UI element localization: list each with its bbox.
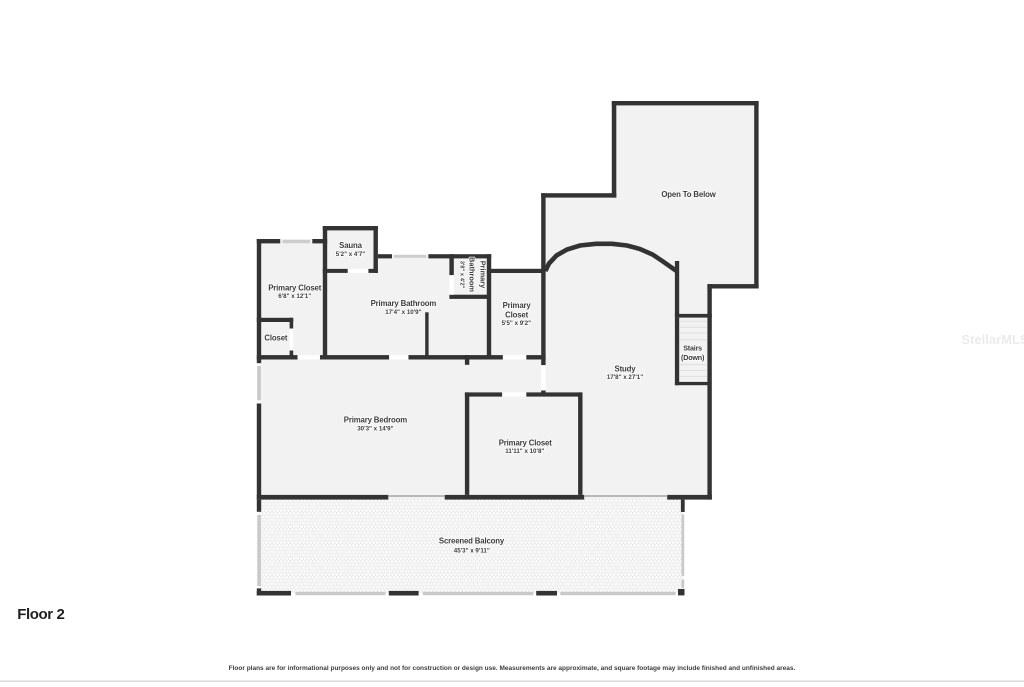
svg-text:Primary Bedroom: Primary Bedroom — [344, 415, 407, 424]
svg-text:Screened Balcony: Screened Balcony — [439, 537, 505, 546]
svg-text:(Down): (Down) — [681, 353, 705, 362]
svg-text:Primary: Primary — [479, 261, 488, 289]
svg-text:Primary Closet: Primary Closet — [499, 438, 552, 447]
svg-text:30'3" x 14'9": 30'3" x 14'9" — [357, 426, 393, 433]
svg-text:Primary Bathroom: Primary Bathroom — [371, 299, 437, 308]
svg-text:Floor plans are for informatio: Floor plans are for informational purpos… — [229, 665, 796, 672]
svg-text:Open To Below: Open To Below — [661, 190, 716, 199]
svg-text:Primary Closet: Primary Closet — [268, 284, 321, 293]
svg-text:11'11" x 10'8": 11'11" x 10'8" — [505, 448, 544, 455]
svg-text:Closet: Closet — [505, 311, 528, 320]
svg-text:6'8" x 12'1": 6'8" x 12'1" — [278, 293, 311, 300]
svg-text:5'2" x 4'7": 5'2" x 4'7" — [336, 251, 366, 258]
svg-text:17'4" x 10'9": 17'4" x 10'9" — [385, 309, 421, 316]
svg-text:17'8" x 27'1": 17'8" x 27'1" — [607, 374, 643, 381]
svg-text:Study: Study — [615, 365, 637, 374]
svg-text:StellarMLS: StellarMLS — [961, 332, 1024, 347]
svg-text:3'8" x 4'2": 3'8" x 4'2" — [459, 261, 465, 289]
svg-text:5'5" x 9'2": 5'5" x 9'2" — [502, 320, 532, 327]
svg-text:Primary: Primary — [503, 301, 532, 310]
svg-text:Stairs: Stairs — [683, 344, 702, 353]
svg-text:Sauna: Sauna — [339, 241, 362, 250]
svg-text:45'3" x 9'11": 45'3" x 9'11" — [454, 547, 490, 554]
svg-text:Bathroom: Bathroom — [467, 257, 476, 292]
svg-text:Floor 2: Floor 2 — [17, 606, 64, 623]
svg-text:Closet: Closet — [264, 334, 287, 343]
